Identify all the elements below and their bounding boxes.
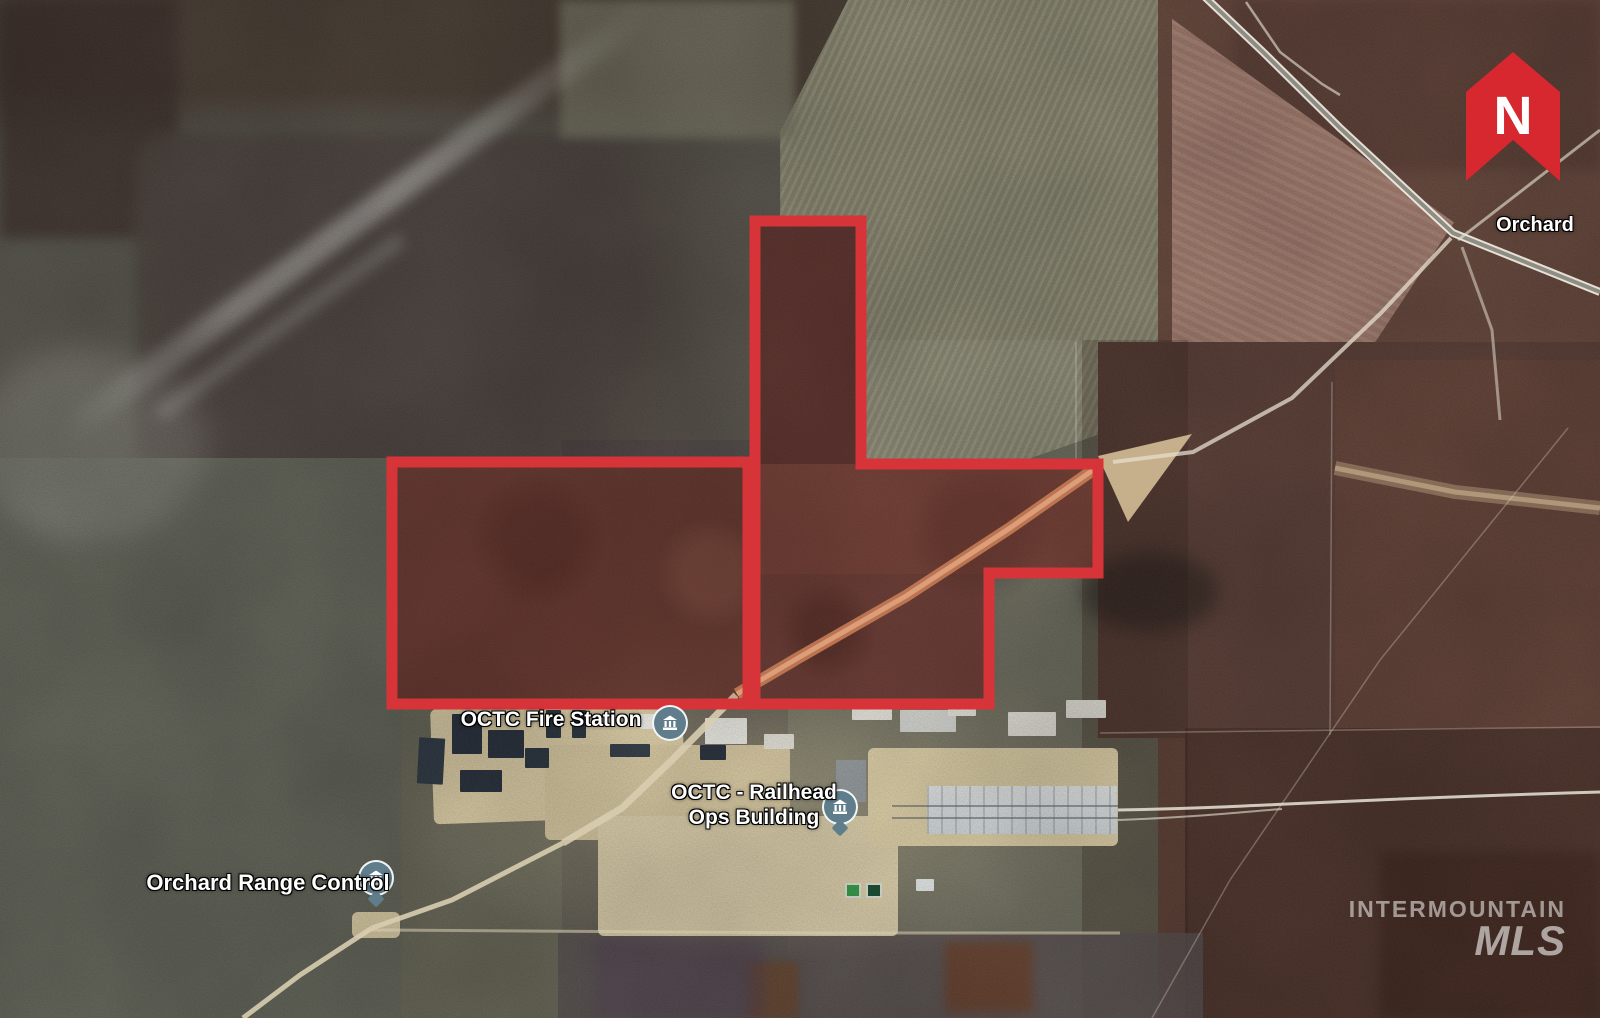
label-railhead-line1: OCTC - Railhead — [640, 781, 868, 805]
label-railhead-line2: Ops Building — [640, 806, 868, 830]
satellite-map[interactable]: N OCTC Fire Station OCTC - Railhead Ops … — [0, 0, 1600, 1018]
poi-pin-fire-station[interactable] — [652, 705, 688, 741]
access-roads — [243, 695, 1120, 1018]
parcel-boundary-west — [392, 462, 748, 704]
rail-lines — [892, 792, 1600, 820]
label-orchard-town: Orchard — [1475, 214, 1595, 237]
map-overlay: N — [0, 0, 1600, 1018]
watermark-line2: MLS — [1349, 918, 1566, 964]
side-road — [1462, 247, 1500, 420]
label-railhead: OCTC - Railhead Ops Building — [640, 781, 868, 830]
label-range-control: Orchard Range Control — [138, 870, 398, 896]
gravel-road — [1113, 238, 1451, 462]
label-fire-station: OCTC Fire Station — [455, 708, 647, 732]
north-letter: N — [1494, 86, 1533, 146]
mls-watermark: INTERMOUNTAIN MLS — [1349, 897, 1566, 964]
dirt-wedge — [1098, 434, 1192, 522]
north-arrow-icon: N — [1466, 52, 1560, 181]
poi-building-icon — [661, 714, 679, 732]
parcel-boundary-east — [755, 221, 1098, 704]
